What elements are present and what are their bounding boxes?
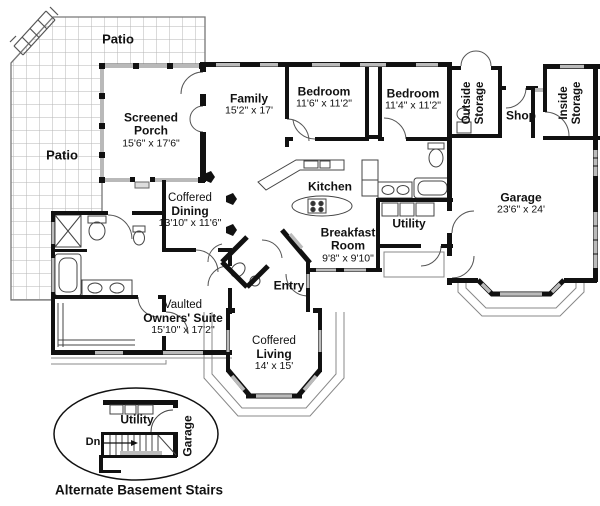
patio-area [10, 7, 205, 300]
columns [204, 171, 237, 236]
vanity [82, 280, 132, 297]
utility-appliances [382, 203, 434, 216]
bathtub [55, 254, 81, 296]
shower [55, 215, 81, 247]
toilet [88, 216, 106, 240]
storage-fixtures [457, 108, 471, 133]
closet-shelves [58, 303, 135, 347]
floor-plan: Patio Patio Screened Porch 15'6" x 17'6"… [0, 0, 600, 506]
basement-stairs-inset [54, 388, 218, 480]
fixtures [55, 108, 471, 347]
hall-bath [378, 143, 451, 198]
toilet-2 [133, 226, 145, 245]
kitchen-island [292, 196, 352, 216]
kitchen-counter [258, 160, 378, 196]
floor-plan-drawing [0, 0, 600, 506]
